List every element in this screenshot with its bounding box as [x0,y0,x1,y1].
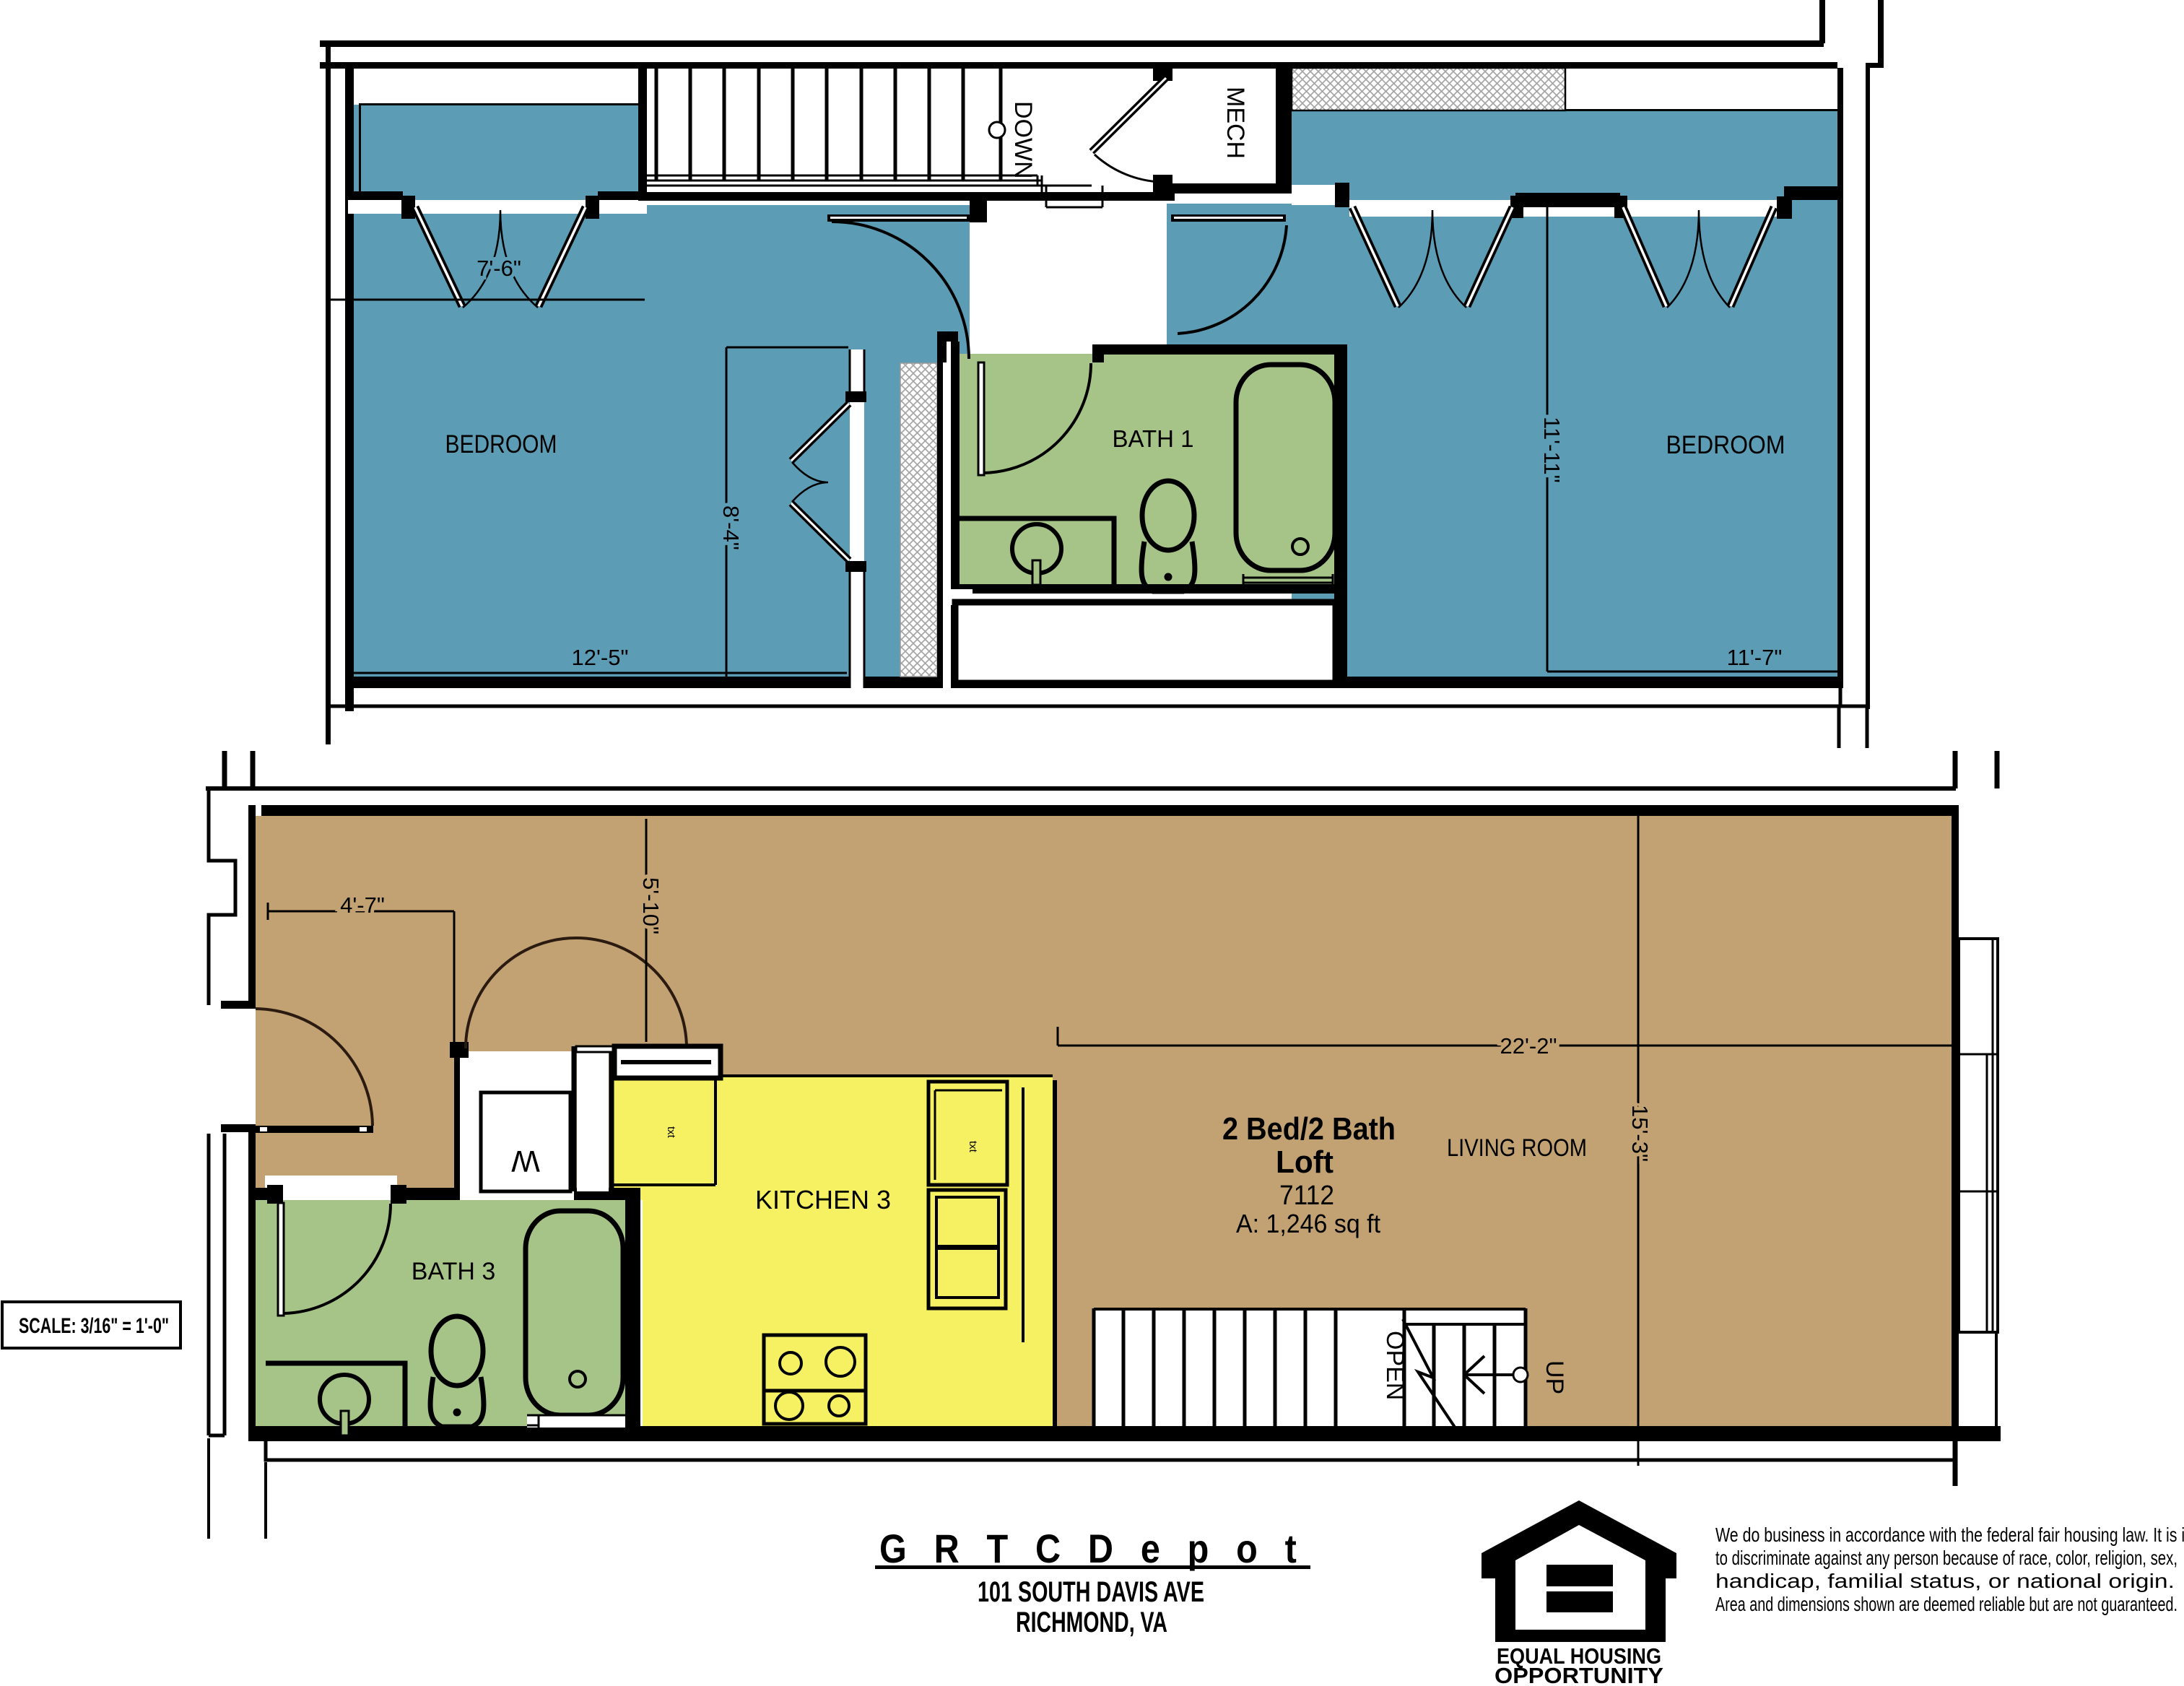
svg-text:to discriminate against any pe: to discriminate against any person becau… [1715,1547,2178,1569]
svg-text:txt: txt [967,1141,979,1153]
svg-text:MECH: MECH [1222,87,1249,159]
svg-text:7'-6": 7'-6" [477,256,521,281]
svg-text:101 SOUTH DAVIS AVE: 101 SOUTH DAVIS AVE [978,1576,1204,1608]
svg-text:4'-7": 4'-7" [340,892,385,918]
svg-text:Area and dimensions shown are: Area and dimensions shown are deemed rel… [1715,1593,2178,1615]
svg-text:We do business in accordance w: We do business in accordance with the fe… [1715,1524,2184,1546]
svg-text:11'-7": 11'-7" [1727,645,1783,670]
svg-text:11'-11": 11'-11" [1539,417,1565,483]
svg-text:5'-10": 5'-10" [638,877,664,934]
svg-text:BATH 1: BATH 1 [1112,425,1193,452]
svg-text:KITCHEN 3: KITCHEN 3 [755,1185,891,1214]
svg-text:G R T C D e p o t: G R T C D e p o t [879,1526,1305,1571]
svg-text:DOWN: DOWN [1009,101,1037,179]
svg-text:handicap, familial status, or: handicap, familial status, or national o… [1715,1570,2175,1592]
svg-text:Loft: Loft [1276,1144,1334,1180]
svg-text:W: W [511,1144,540,1178]
svg-text:A: 1,246 sq ft: A: 1,246 sq ft [1236,1209,1380,1238]
svg-text:LIVING ROOM: LIVING ROOM [1447,1134,1587,1162]
svg-text:15'-3": 15'-3" [1627,1105,1653,1162]
svg-text:SCALE: 3/16" = 1'-0": SCALE: 3/16" = 1'-0" [19,1314,169,1338]
svg-text:txt: txt [665,1126,677,1139]
svg-text:OPEN: OPEN [1381,1331,1409,1400]
svg-text:BEDROOM: BEDROOM [445,430,557,459]
svg-text:8'-4": 8'-4" [718,505,744,550]
svg-text:UP: UP [1541,1360,1568,1394]
svg-text:RICHMOND, VA: RICHMOND, VA [1016,1607,1167,1638]
svg-text:BEDROOM: BEDROOM [1666,431,1785,459]
svg-text:22'-2": 22'-2" [1500,1033,1557,1059]
svg-text:BATH 3: BATH 3 [412,1258,496,1285]
svg-text:OPPORTUNITY: OPPORTUNITY [1495,1663,1663,1686]
svg-text:7112: 7112 [1279,1181,1334,1211]
svg-text:12'-5": 12'-5" [572,645,629,670]
svg-text:2 Bed/2 Bath: 2 Bed/2 Bath [1222,1111,1396,1147]
